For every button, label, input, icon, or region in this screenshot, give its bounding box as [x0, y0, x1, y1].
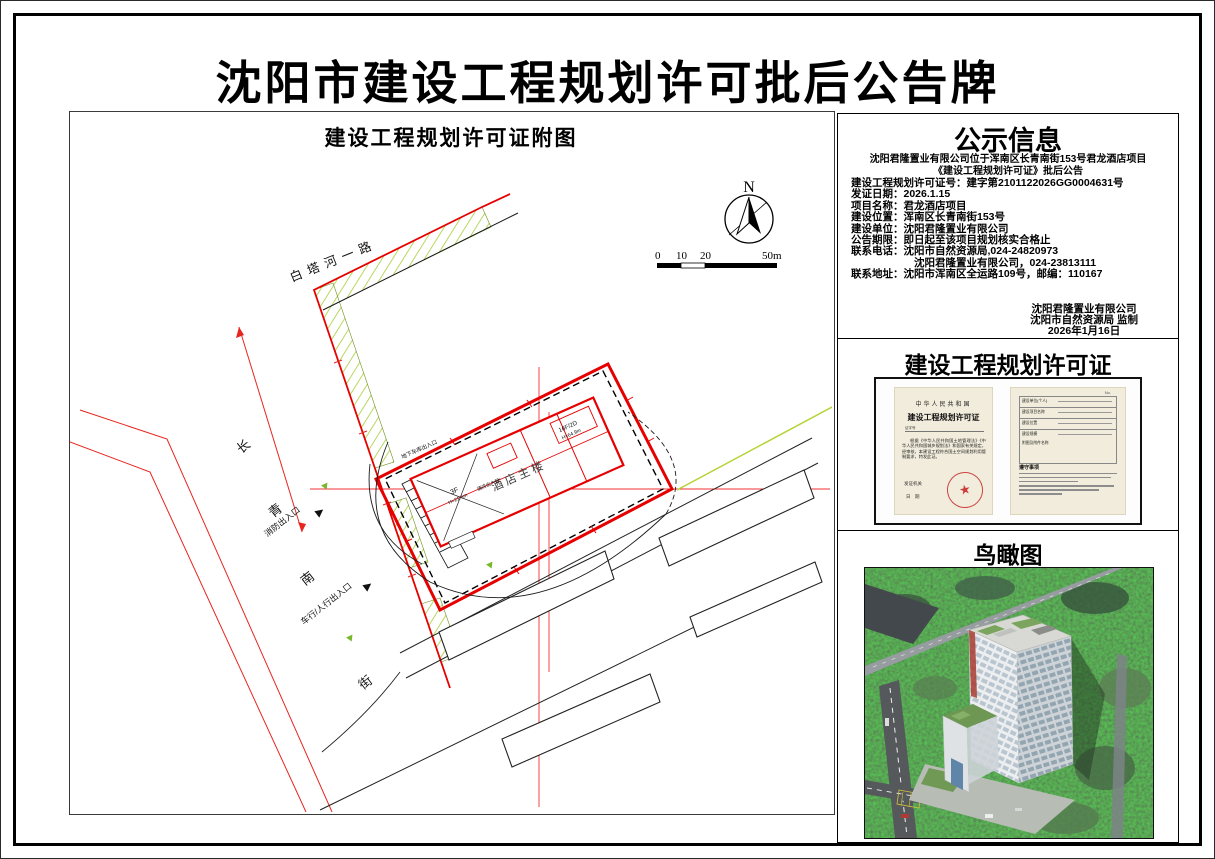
scale-bar: 0 10 20 50m [655, 250, 782, 268]
cert-number-line: 证字号 [905, 426, 984, 432]
scale-tick: 20 [700, 250, 712, 262]
official-seal-icon: ★ [944, 468, 987, 511]
notice-subtitle-line1: 沈阳君隆置业有限公司位于浑南区长青南街153号君龙酒店项目 [838, 154, 1178, 166]
notice-panel: 公示信息 沈阳君隆置业有限公司位于浑南区长青南街153号君龙酒店项目 《建设工程… [837, 113, 1179, 339]
form-value-bar [1058, 401, 1112, 403]
road-label-changqing: 长 青 南 街 [234, 437, 375, 693]
text-line-bar [1019, 477, 1111, 479]
plan-title: 建设工程规划许可证附图 [325, 126, 578, 150]
road-char: 南 [298, 569, 317, 589]
form-value-bar [1058, 412, 1112, 414]
field-label: 联系电话： [851, 245, 904, 257]
cert-form-row: 建设项目名称 [1019, 407, 1117, 418]
cert-date-label: 日 期 [906, 494, 920, 500]
compass-north-label: N [743, 179, 755, 196]
aerial-render-image [864, 567, 1154, 839]
scale-tick: 50m [762, 250, 782, 262]
scale-tick: 0 [655, 250, 661, 262]
cert-form-row: 建设单位(个人) [1019, 396, 1117, 407]
text-line-bar [1019, 485, 1114, 487]
footer-line: 2026年1月16日 [1030, 326, 1138, 337]
form-label: 建设项目名称 [1020, 410, 1058, 415]
text-line-bar [1019, 473, 1117, 475]
field-label: 项目名称： [851, 200, 904, 212]
cert-country: 中华人民共和国 [895, 399, 992, 408]
scale-tick: 10 [676, 250, 688, 262]
text-line-bar [1019, 489, 1099, 491]
field-label: 联系地址： [851, 268, 904, 280]
field-value: 沈阳市自然资源局,024-24820973 [904, 245, 1059, 257]
field-value: 建字第2101122026GG0004631号 [967, 177, 1124, 189]
permit-title: 建设工程规划许可证 [838, 346, 1178, 380]
cert-attachment-cell: 附图及附件名称 [1019, 440, 1117, 464]
text-line-bar [1019, 493, 1062, 495]
cert-notes-lines [1019, 473, 1117, 498]
cert-form-row: 建设位置 [1019, 418, 1117, 429]
cert-form-table: 建设单位(个人) 建设项目名称 建设位置 建设规模 附图及附件名称 [1019, 396, 1117, 464]
field-value: 浑南区长青南街153号 [904, 211, 1006, 223]
certificate-right-page: No. 建设单位(个人) 建设项目名称 建设位置 建设规模 附图及附件名称 遵守… [1010, 387, 1126, 515]
field-label: 发证日期： [851, 188, 904, 200]
form-value-bar [1058, 423, 1112, 425]
page-title: 沈阳市建设工程规划许可批后公告牌 [1, 47, 1214, 113]
site-plan-box: 建设工程规划许可证附图 N 0 10 20 50m [69, 111, 835, 815]
field-value: 沈阳市浑南区全运路109号，邮编：110167 [904, 268, 1103, 280]
road-char: 街 [356, 673, 375, 693]
form-label: 建设规模 [1020, 432, 1058, 437]
green-boundary-line [677, 407, 832, 490]
notice-subtitle-line2: 《建设工程规划许可证》批后公告 [838, 166, 1178, 178]
permit-certificate-image: 中华人民共和国 建设工程规划许可证 证字号 根据《中华人民共和国土地管理法》《中… [874, 377, 1142, 525]
site-plan-drawing: 建设工程规划许可证附图 N 0 10 20 50m [70, 112, 832, 812]
vehicle-entrance-arrow-icon [362, 580, 373, 591]
notice-fields: 建设工程规划许可证号：建字第2101122026GG0004631号 发证日期：… [851, 178, 1170, 281]
form-label: 建设单位(个人) [1020, 399, 1058, 404]
notice-board: 沈阳市建设工程规划许可批后公告牌 建设工程规划许可证附图 N [0, 0, 1215, 859]
field-label: 建设位置： [851, 211, 904, 223]
field-value: 沈阳君隆置业有限公司 [904, 223, 1009, 235]
fire-entrance-arrow-icon [314, 506, 325, 517]
notice-footer: 沈阳君隆置业有限公司 沈阳市自然资源局 监制 2026年1月16日 [1030, 304, 1138, 338]
cert-no-mark: No. [1105, 390, 1111, 395]
notice-subtitle: 沈阳君隆置业有限公司位于浑南区长青南街153号君龙酒店项目 《建设工程规划许可证… [838, 154, 1178, 177]
text-line-bar [1019, 481, 1078, 483]
field-value: 2026.1.15 [904, 188, 951, 200]
field-value: 君龙酒店项目 [904, 200, 967, 212]
form-label: 建设位置 [1020, 421, 1058, 426]
cert-body-text: 根据《中华人民共和国土地管理法》《中华人民共和国城乡规划法》和国家有关规定，经审… [902, 438, 986, 460]
aerial-panel: 鸟瞰图 [837, 530, 1179, 843]
aerial-title: 鸟瞰图 [838, 536, 1178, 570]
southeast-street [320, 438, 818, 810]
field-label: 建设单位： [851, 223, 904, 235]
road-char: 长 [234, 437, 253, 457]
notice-field-row: 联系地址：沈阳市浑南区全运路109号，邮编：110167 [851, 269, 1170, 280]
cert-form-row: 建设规模 [1019, 429, 1117, 440]
form-value-bar [1058, 434, 1112, 436]
cert-title-text: 建设工程规划许可证 [895, 412, 992, 423]
permit-panel: 建设工程规划许可证 中华人民共和国 建设工程规划许可证 证字号 根据《中华人民共… [837, 338, 1179, 531]
compass-icon: N [725, 179, 773, 243]
notice-title: 公示信息 [838, 119, 1178, 158]
aerial-render-svg [865, 568, 1153, 838]
certificate-left-page: 中华人民共和国 建设工程规划许可证 证字号 根据《中华人民共和国土地管理法》《中… [894, 387, 993, 515]
cert-notes-title: 遵守事项 [1019, 464, 1039, 471]
cert-issuer-label: 发证机关 [904, 481, 922, 487]
